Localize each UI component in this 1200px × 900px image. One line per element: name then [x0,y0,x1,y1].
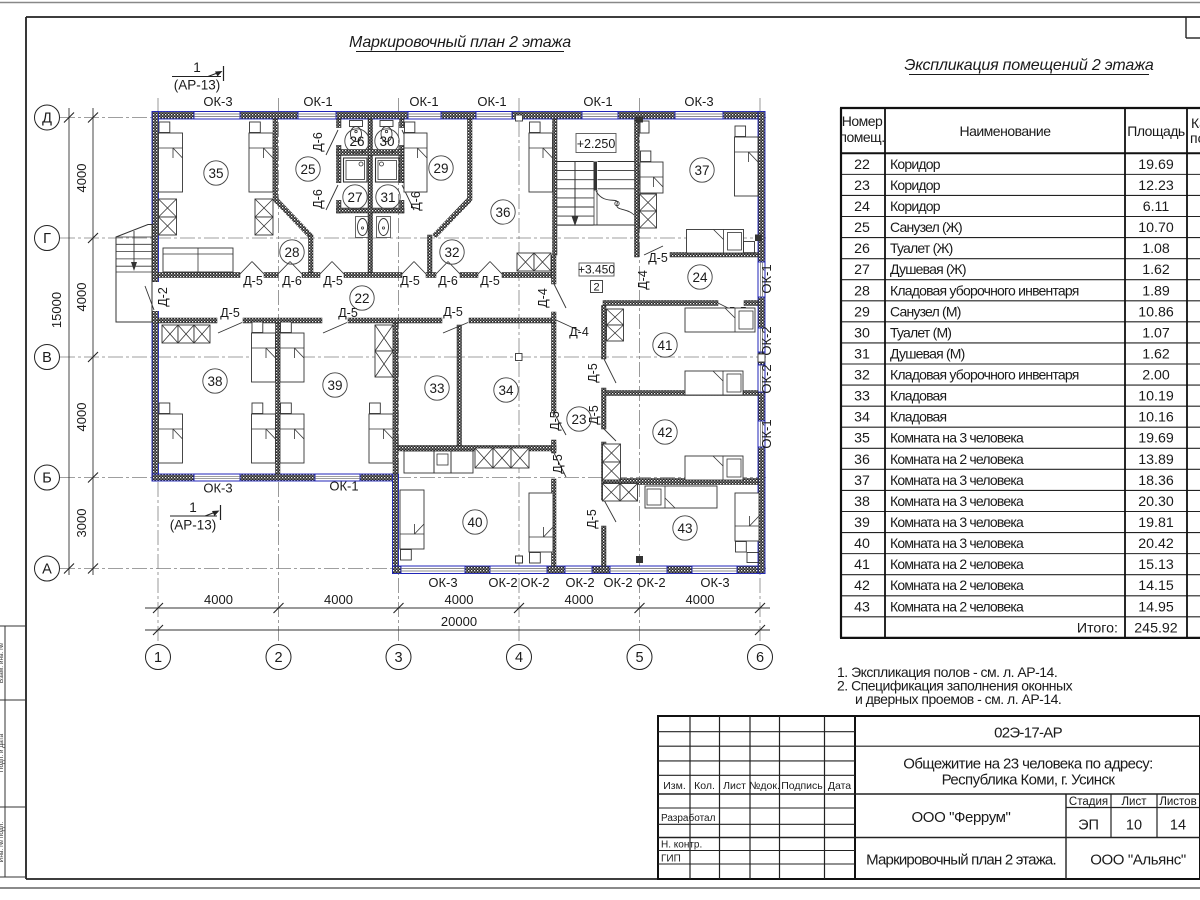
svg-text:30: 30 [854,325,870,341]
svg-text:14: 14 [1170,818,1186,834]
svg-text:Д-4: Д-4 [636,270,650,290]
svg-text:1.62: 1.62 [1142,262,1170,278]
svg-text:10.70: 10.70 [1138,220,1174,236]
svg-text:Д-4: Д-4 [536,288,550,308]
svg-text:ОК-3: ОК-3 [203,481,232,496]
svg-text:Комната на 2 человека: Комната на 2 человека [890,451,1024,467]
svg-text:Комната на 3 человека: Комната на 3 человека [890,472,1024,488]
svg-text:Д-6: Д-6 [438,274,458,288]
svg-text:ОК-3: ОК-3 [428,575,457,590]
svg-text:4000: 4000 [565,592,594,607]
svg-text:Разработал: Разработал [661,812,716,824]
svg-text:Д-5: Д-5 [551,454,565,474]
svg-text:Д-5: Д-5 [586,363,600,383]
svg-text:Д-5: Д-5 [648,251,668,265]
svg-text:Д-5: Д-5 [443,305,463,319]
svg-text:33: 33 [854,389,870,405]
svg-text:ООО "Альянс": ООО "Альянс" [1090,852,1186,869]
svg-text:ОК-1: ОК-1 [329,479,358,494]
svg-text:18.36: 18.36 [1138,473,1174,489]
svg-text:ОК-1: ОК-1 [759,264,774,293]
svg-text:25: 25 [854,220,870,236]
svg-text:по: по [1190,130,1200,146]
svg-text:42: 42 [854,578,870,594]
svg-text:ЭП: ЭП [1078,818,1099,834]
svg-text:ОК-3: ОК-3 [684,94,713,109]
svg-text:15.13: 15.13 [1138,557,1174,573]
svg-text:2: 2 [593,282,599,294]
svg-text:Взам. инв. №: Взам. инв. № [0,643,5,683]
svg-text:ОК-1: ОК-1 [303,94,332,109]
svg-text:1: 1 [193,60,201,75]
svg-text:В: В [42,350,52,366]
svg-text:ОК-2: ОК-2 [759,326,774,355]
svg-text:Комната на 2 человека: Комната на 2 человека [890,598,1024,614]
svg-text:Изм.: Изм. [663,780,686,792]
svg-text:37: 37 [854,473,870,489]
svg-text:(АР-13): (АР-13) [170,518,217,533]
svg-text:ОК-2: ОК-2 [520,575,549,590]
svg-text:ОК-2: ОК-2 [603,575,632,590]
svg-text:Д-6: Д-6 [409,191,423,211]
svg-text:Наименование: Наименование [959,123,1051,139]
svg-text:Кладовая уборочного инвентаря: Кладовая уборочного инвентаря [890,282,1079,298]
svg-text:4000: 4000 [204,592,233,607]
svg-text:4000: 4000 [74,164,89,193]
svg-text:37: 37 [694,163,709,178]
svg-text:19.69: 19.69 [1138,157,1174,173]
svg-text:ГИП: ГИП [661,854,681,865]
svg-text:Санузел (Ж): Санузел (Ж) [890,219,962,235]
svg-text:10.16: 10.16 [1138,410,1174,426]
svg-text:24: 24 [692,270,708,285]
svg-text:Лист: Лист [723,780,746,792]
svg-text:Д-5: Д-5 [548,411,562,431]
svg-text:26: 26 [854,241,870,257]
svg-text:ОК-2: ОК-2 [488,575,517,590]
svg-text:33: 33 [429,381,444,396]
svg-text:ОК-2: ОК-2 [636,575,665,590]
svg-text:22: 22 [354,291,369,306]
svg-text:Санузел (М): Санузел (М) [890,303,961,319]
svg-text:Д-6: Д-6 [282,274,302,288]
svg-text:Душевая (М): Душевая (М) [890,345,965,361]
svg-text:10: 10 [1126,818,1142,834]
svg-text:28: 28 [854,283,870,299]
svg-text:19.81: 19.81 [1138,515,1174,531]
svg-text:Д-5: Д-5 [220,306,240,320]
svg-text:Д-5: Д-5 [480,274,500,288]
svg-text:Д-5: Д-5 [323,274,343,288]
svg-text:23: 23 [854,178,870,194]
svg-text:15000: 15000 [49,292,64,328]
svg-text:1.07: 1.07 [1142,325,1170,341]
svg-text:6: 6 [756,650,764,666]
svg-text:Кол.: Кол. [694,780,715,792]
svg-text:36: 36 [854,452,870,468]
svg-text:4: 4 [515,650,523,666]
svg-text:3: 3 [394,650,402,666]
svg-text:6.11: 6.11 [1143,199,1170,215]
svg-text:ОК-3: ОК-3 [203,94,232,109]
svg-text:Комната на 3 человека: Комната на 3 человека [890,430,1024,446]
svg-text:Маркировочный план 2 этажа.: Маркировочный план 2 этажа. [866,852,1056,869]
svg-text:Экспликация помещений 2 этажа: Экспликация помещений 2 этажа [904,57,1153,74]
svg-text:Д-5: Д-5 [400,274,420,288]
svg-text:Подп. и дата: Подп. и дата [0,733,5,772]
svg-text:Инв. № подл.: Инв. № подл. [0,822,5,863]
svg-text:1.08: 1.08 [1142,241,1170,257]
svg-text:42: 42 [657,425,672,440]
svg-text:ОК-3: ОК-3 [700,575,729,590]
svg-text:20000: 20000 [441,614,477,629]
svg-text:24: 24 [854,199,870,215]
svg-text:Туалет (Ж): Туалет (Ж) [890,240,953,256]
svg-text:02Э-17-АР: 02Э-17-АР [994,725,1063,742]
svg-text:35: 35 [208,166,223,181]
svg-text:Д-5: Д-5 [585,509,599,529]
svg-text:2: 2 [274,650,282,666]
svg-text:и дверных проемов - см. л. АР-: и дверных проемов - см. л. АР-14. [855,691,1061,707]
svg-text:29: 29 [854,304,870,320]
svg-text:35: 35 [854,431,870,447]
svg-text:Кладовая: Кладовая [890,388,947,404]
svg-text:23: 23 [571,412,586,427]
svg-text:Кладовая уборочного инвентаря: Кладовая уборочного инвентаря [890,367,1079,383]
svg-text:№док.: №док. [749,780,780,792]
svg-text:27: 27 [347,190,362,205]
svg-text:Д: Д [42,111,52,127]
svg-text:19.69: 19.69 [1138,431,1174,447]
svg-text:39: 39 [854,515,870,531]
svg-text:А: А [42,562,52,578]
svg-text:20.30: 20.30 [1138,494,1174,510]
svg-text:Д-2: Д-2 [156,287,170,307]
svg-text:27: 27 [854,262,870,278]
svg-text:31: 31 [380,190,395,205]
svg-text:Комната на 3 человека: Комната на 3 человека [890,493,1024,509]
svg-text:Площадь: Площадь [1127,123,1185,139]
svg-text:40: 40 [854,536,870,552]
svg-text:Б: Б [42,471,52,487]
svg-text:Общежитие на 23 человека по ад: Общежитие на 23 человека по адресу: [903,756,1152,773]
svg-text:4000: 4000 [686,592,715,607]
svg-text:Коридор: Коридор [890,156,941,172]
svg-text:Душевая (Ж): Душевая (Ж) [890,261,966,277]
svg-text:+2.250: +2.250 [577,137,616,151]
svg-text:4000: 4000 [74,403,89,432]
svg-text:22: 22 [854,157,870,173]
svg-text:Н. контр.: Н. контр. [661,840,702,851]
svg-text:31: 31 [854,346,870,362]
svg-text:40: 40 [467,515,482,530]
svg-text:2.00: 2.00 [1142,368,1170,384]
svg-text:Д-6: Д-6 [311,189,325,209]
svg-text:12.23: 12.23 [1138,178,1174,194]
svg-text:Стадия: Стадия [1069,796,1108,808]
svg-text:Д-4: Д-4 [569,325,589,339]
svg-text:5: 5 [635,650,643,666]
svg-text:ОК-2: ОК-2 [759,364,774,393]
svg-text:1.89: 1.89 [1142,283,1170,299]
svg-text:4000: 4000 [324,592,353,607]
svg-text:Номер: Номер [842,113,883,129]
svg-text:Дата: Дата [828,780,851,792]
svg-text:14.15: 14.15 [1138,578,1174,594]
svg-text:13.89: 13.89 [1138,452,1174,468]
svg-text:ОК-2: ОК-2 [565,575,594,590]
svg-text:29: 29 [433,161,448,176]
svg-text:10.19: 10.19 [1138,389,1174,405]
svg-text:14.95: 14.95 [1138,599,1174,615]
svg-text:32: 32 [444,245,459,260]
svg-text:Коридор: Коридор [890,198,941,214]
svg-text:Д-5: Д-5 [587,405,601,425]
svg-text:20.42: 20.42 [1138,536,1174,552]
svg-text:Коридор: Коридор [890,177,941,193]
svg-text:Комната на 3 человека: Комната на 3 человека [890,514,1024,530]
svg-text:34: 34 [854,410,870,426]
svg-text:+3.450: +3.450 [578,263,615,277]
svg-text:39: 39 [327,378,342,393]
svg-text:ОК-1: ОК-1 [409,94,438,109]
svg-text:Туалет (М): Туалет (М) [890,324,951,340]
svg-text:ООО "Феррум": ООО "Феррум" [912,809,1011,826]
svg-text:38: 38 [854,494,870,510]
svg-text:245.92: 245.92 [1134,620,1178,636]
svg-text:ОК-1: ОК-1 [477,94,506,109]
svg-text:4000: 4000 [445,592,474,607]
svg-text:Г: Г [43,231,51,247]
svg-text:Итого:: Итого: [1077,620,1118,636]
svg-text:28: 28 [284,245,299,260]
svg-text:Д-5: Д-5 [243,274,263,288]
svg-text:38: 38 [207,374,222,389]
svg-text:Ка: Ка [1191,115,1200,131]
svg-text:помещ.: помещ. [839,129,884,145]
svg-text:10.86: 10.86 [1138,304,1174,320]
svg-text:Комната на 2 человека: Комната на 2 человека [890,577,1024,593]
svg-text:Д-6: Д-6 [311,132,325,152]
svg-text:3000: 3000 [74,509,89,538]
svg-text:Подпись: Подпись [781,780,823,792]
svg-text:1: 1 [154,650,162,666]
svg-text:41: 41 [657,338,672,353]
svg-text:Республика Коми, г. Усинск: Республика Коми, г. Усинск [942,772,1116,789]
svg-text:ОК-1: ОК-1 [583,94,612,109]
svg-text:Лист: Лист [1122,796,1148,808]
svg-text:Комната на 2 человека: Комната на 2 человека [890,556,1024,572]
svg-text:25: 25 [300,162,315,177]
svg-text:ОК-1: ОК-1 [759,419,774,448]
svg-text:32: 32 [854,368,870,384]
svg-text:34: 34 [498,383,514,398]
svg-text:1: 1 [189,500,197,515]
svg-text:43: 43 [854,599,870,615]
svg-text:(АР-13): (АР-13) [174,78,221,93]
svg-text:43: 43 [677,521,692,536]
svg-text:Кладовая: Кладовая [890,409,947,425]
svg-text:36: 36 [495,205,510,220]
svg-text:30: 30 [379,134,394,149]
svg-text:1.62: 1.62 [1142,346,1170,362]
svg-text:26: 26 [349,134,364,149]
svg-text:Маркировочный план 2 этажа: Маркировочный план 2 этажа [349,34,571,51]
svg-text:Комната на 3 человека: Комната на 3 человека [890,535,1024,551]
svg-text:Листов: Листов [1159,796,1196,808]
svg-text:41: 41 [854,557,870,573]
svg-text:4000: 4000 [74,283,89,312]
